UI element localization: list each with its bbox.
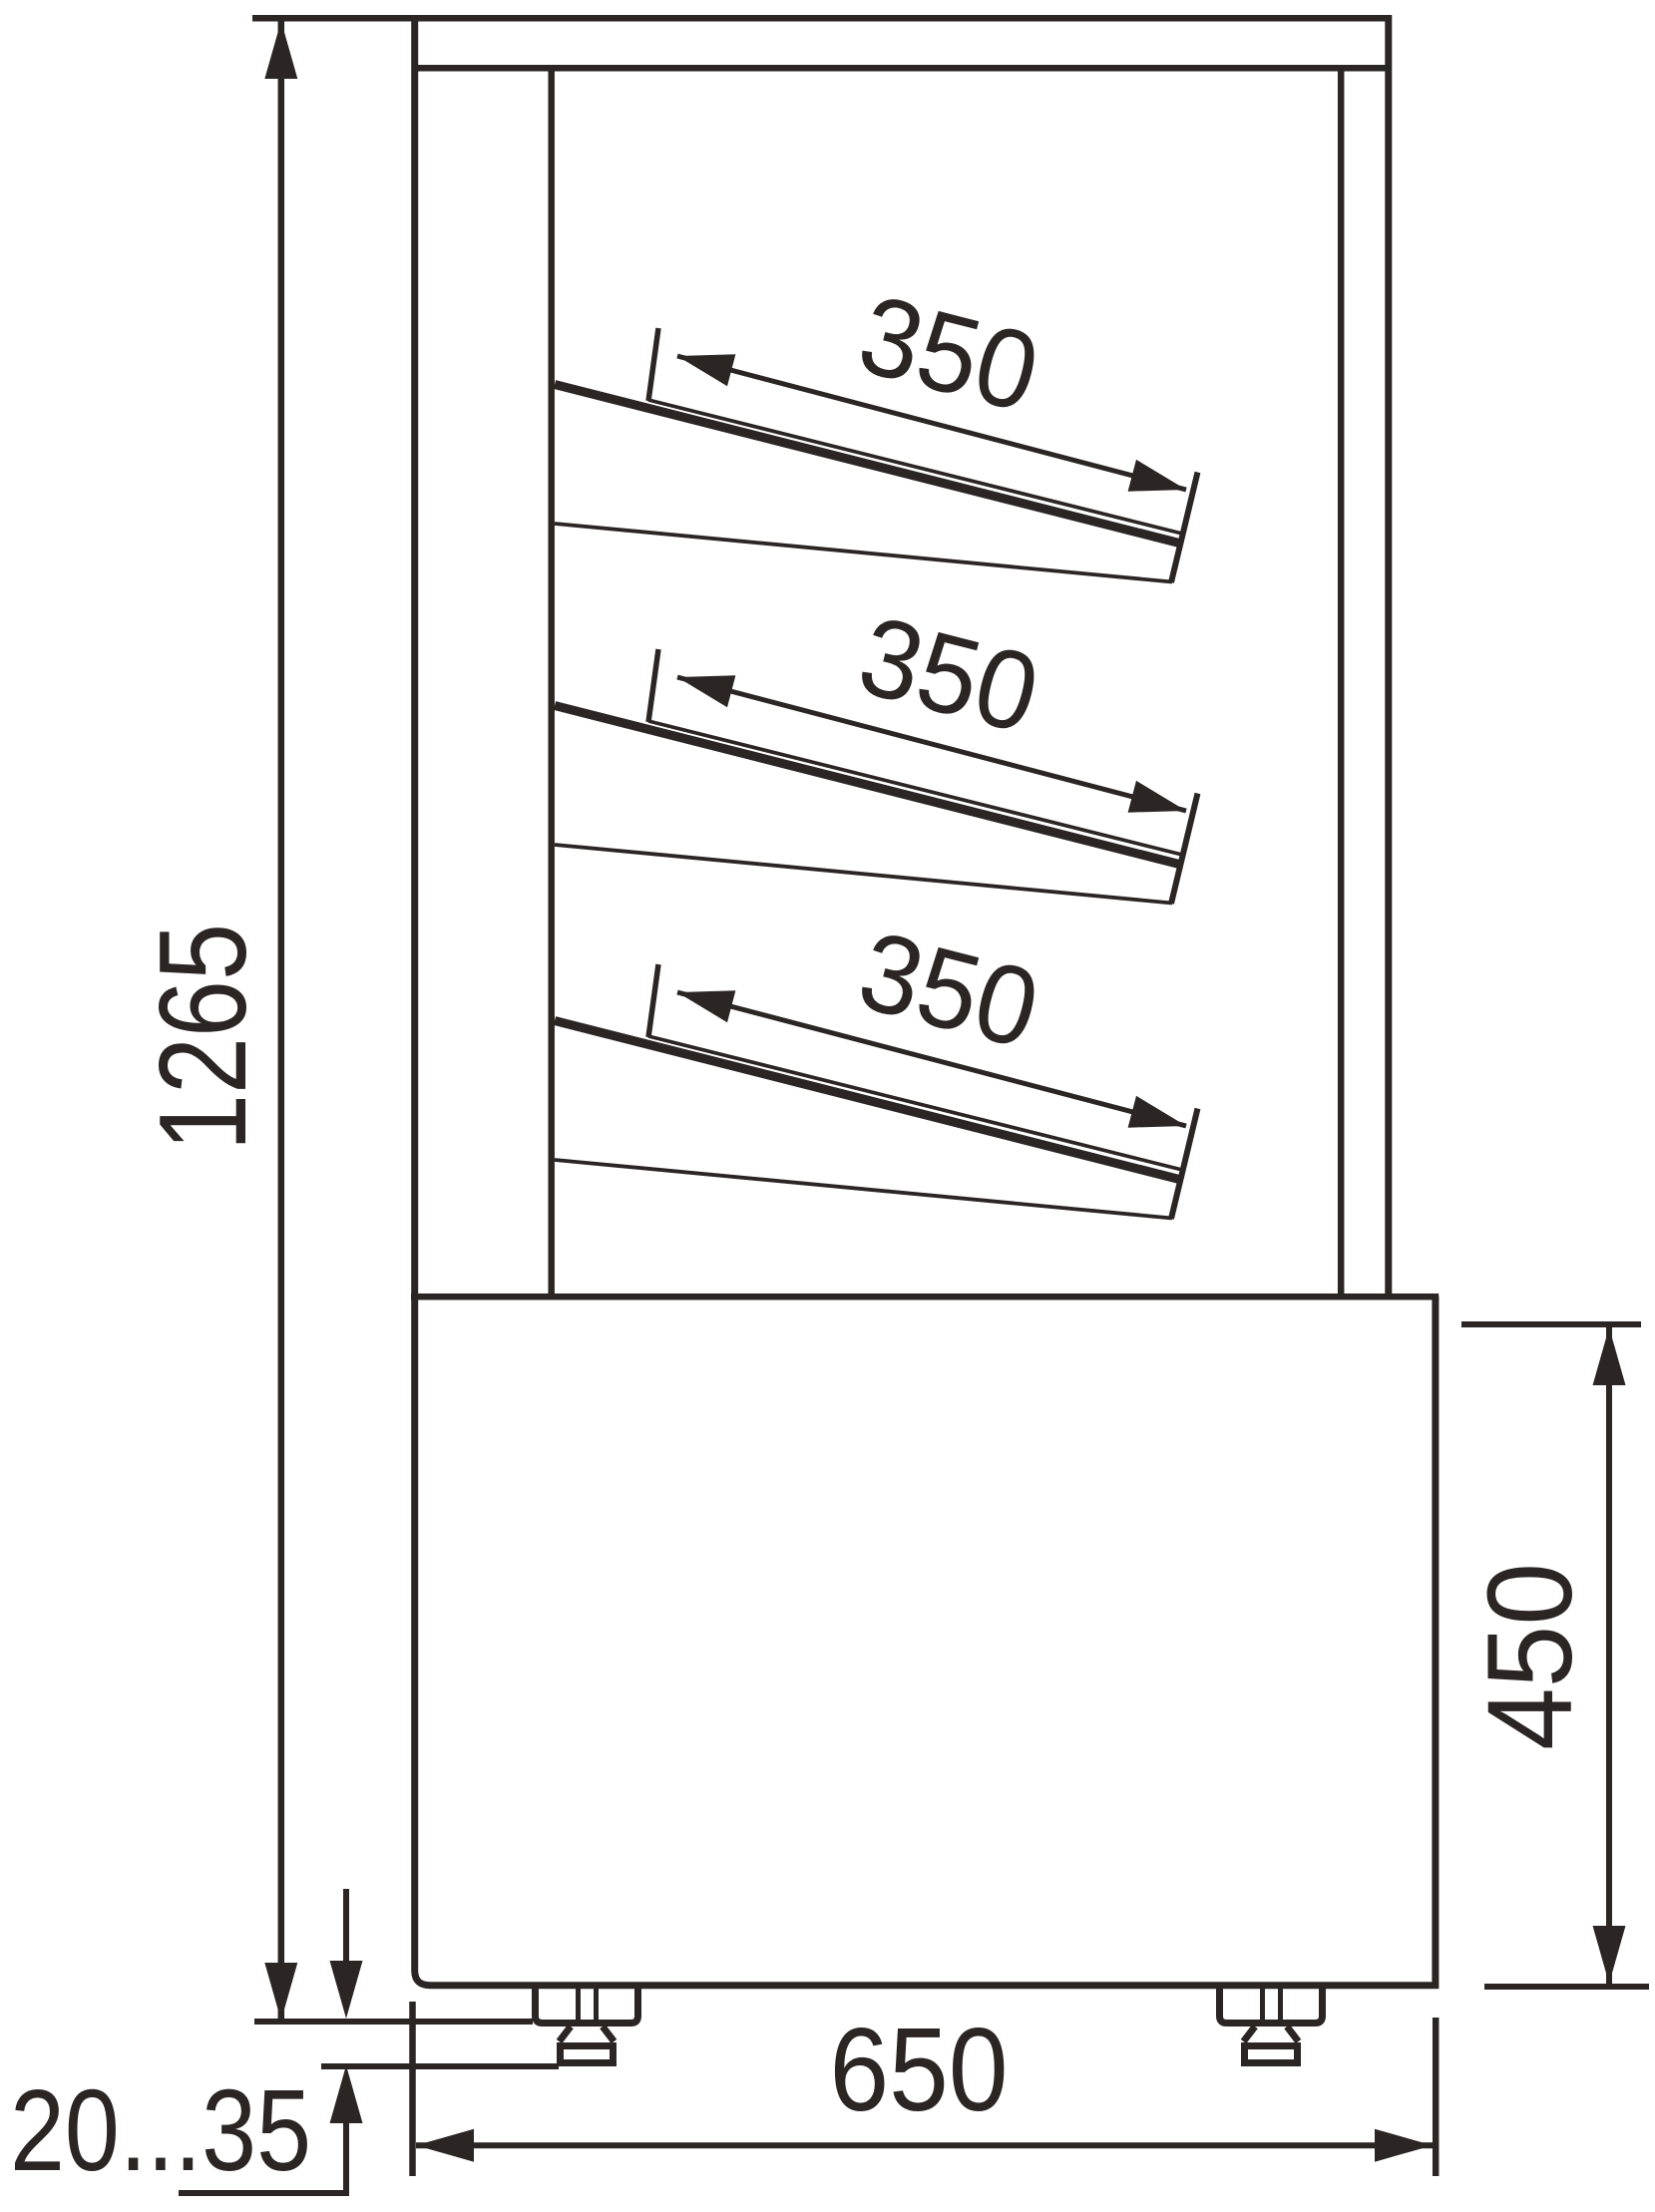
svg-text:650: 650 <box>830 2004 1009 2136</box>
svg-text:20...35: 20...35 <box>10 2065 311 2195</box>
svg-text:450: 450 <box>1461 1563 1597 1750</box>
svg-text:1265: 1265 <box>135 923 272 1151</box>
